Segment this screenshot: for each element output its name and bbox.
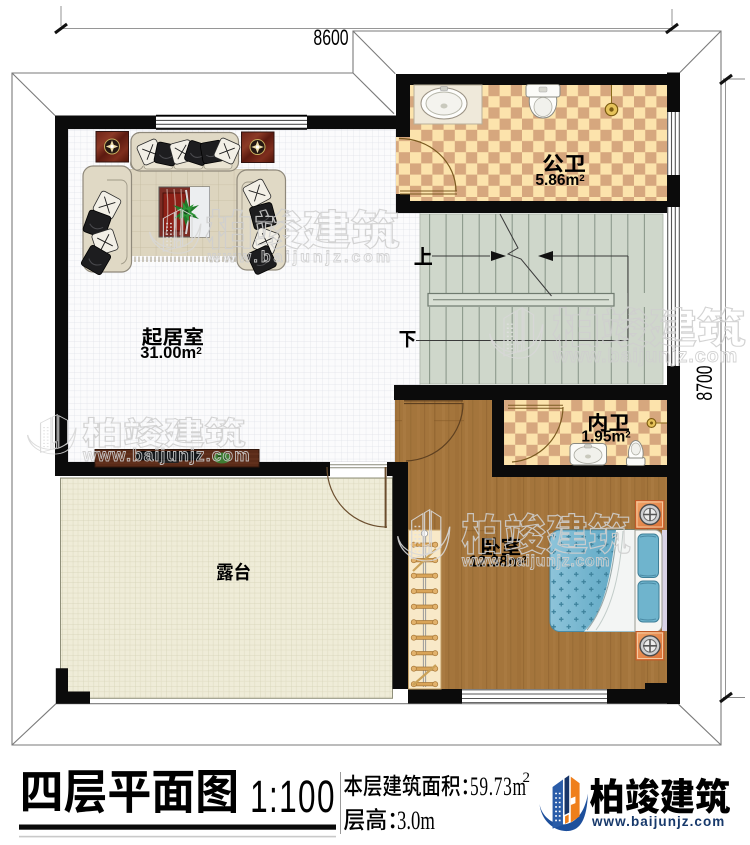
svg-text:59.73m: 59.73m <box>470 772 527 801</box>
svg-text:2: 2 <box>523 770 531 786</box>
svg-text:1.95m2: 1.95m2 <box>581 429 630 446</box>
svg-text:8700: 8700 <box>694 365 718 400</box>
svg-text:www.baijunjz.com: www.baijunjz.com <box>207 249 393 266</box>
svg-text:www.baijunjz.com: www.baijunjz.com <box>591 814 725 829</box>
svg-text:www.baijunjz.com: www.baijunjz.com <box>552 345 738 367</box>
svg-text:5.86m2: 5.86m2 <box>535 172 584 189</box>
svg-text:3.0m: 3.0m <box>397 806 435 835</box>
svg-text:www.baijunjz.com: www.baijunjz.com <box>461 553 610 570</box>
svg-text:www.baijunjz.com: www.baijunjz.com <box>82 445 251 465</box>
svg-text:31.00m2: 31.00m2 <box>140 344 202 362</box>
svg-text:1:100: 1:100 <box>250 773 336 823</box>
svg-text:8600: 8600 <box>313 27 348 51</box>
